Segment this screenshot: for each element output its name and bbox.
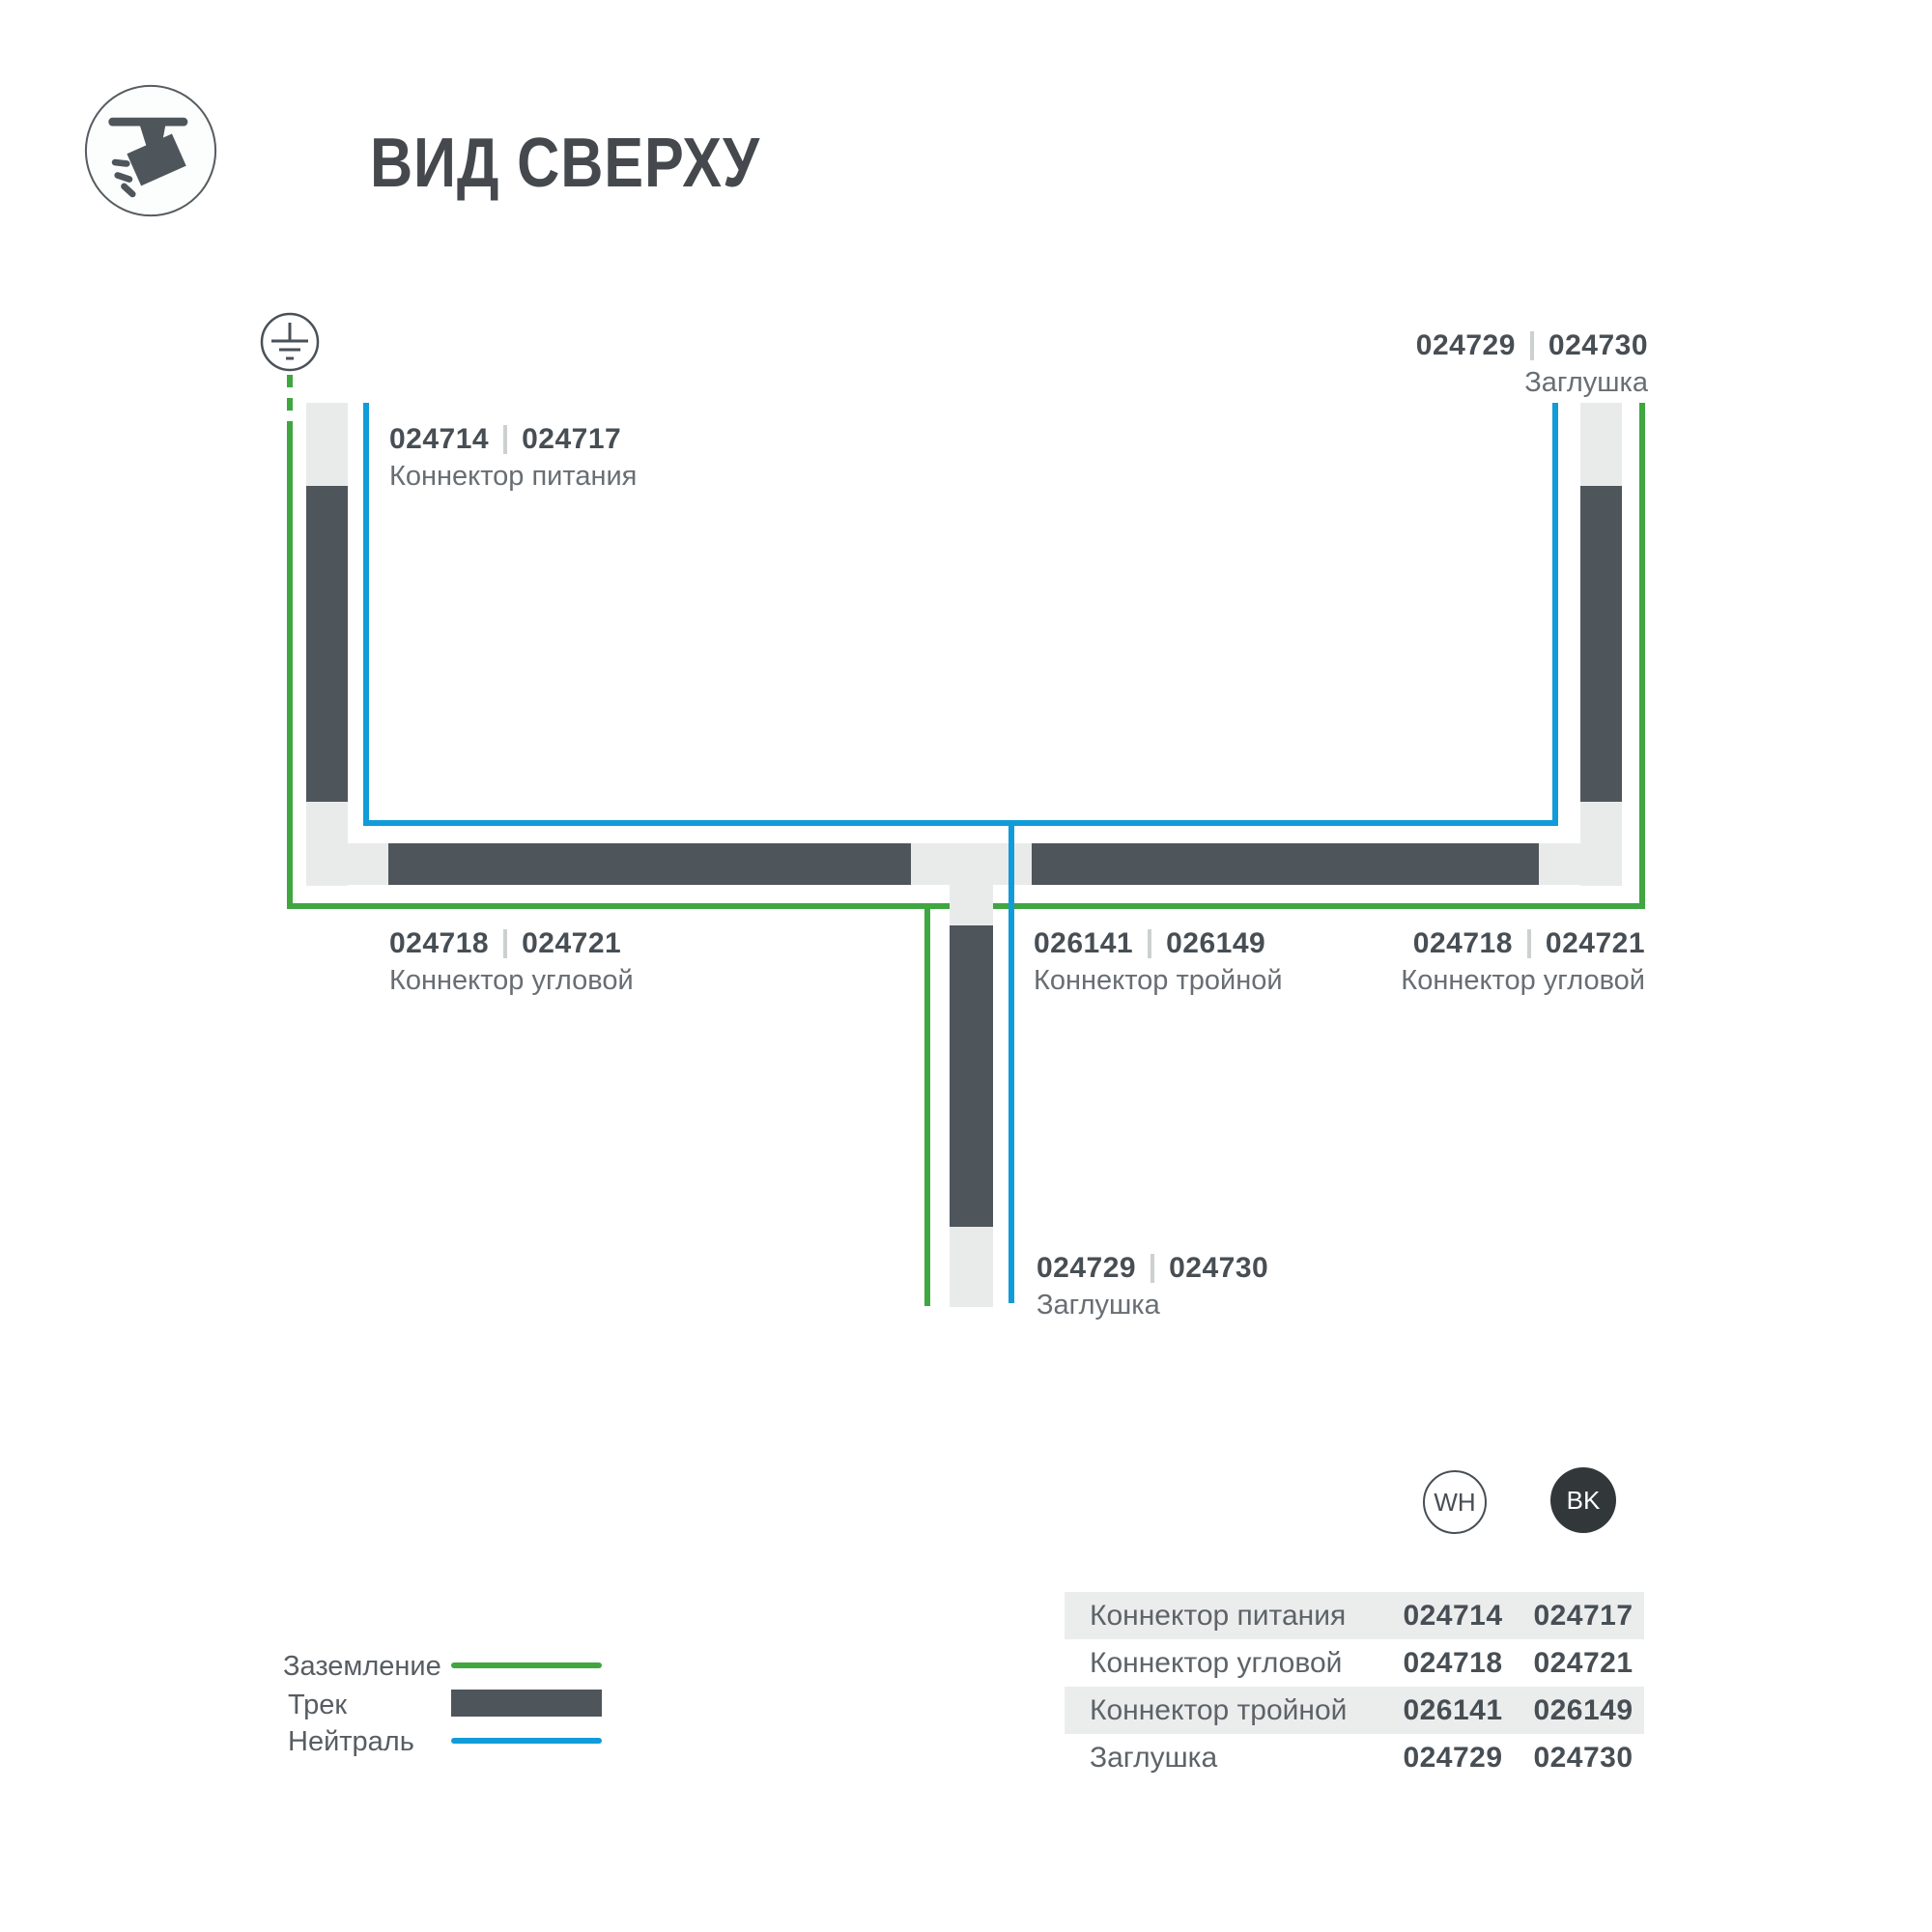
- table-cell-wh: 024714: [1400, 1600, 1506, 1633]
- callout-endcap-top: 024729 024730 Заглушка: [1416, 331, 1648, 397]
- callout-endcap-bottom: 024729 024730 Заглушка: [1037, 1254, 1268, 1320]
- corner-connector-right-stub: [1539, 843, 1580, 885]
- part-name: Коннектор угловой: [389, 967, 634, 995]
- color-swatch-white: WH: [1423, 1470, 1487, 1534]
- legend-swatch-ground-line: [451, 1662, 602, 1668]
- ground-line-branch: [924, 903, 930, 1306]
- part-number-bk: 024721: [1546, 929, 1645, 958]
- track-segment-left-vertical: [306, 486, 348, 802]
- part-number-bk: 024721: [522, 929, 621, 958]
- table-row: Коннектор тройной 026141 026149: [1065, 1687, 1644, 1734]
- part-name: Заглушка: [1037, 1292, 1268, 1320]
- separator: [503, 425, 507, 454]
- ground-line-right: [1639, 403, 1645, 909]
- table-cell-bk: 024721: [1530, 1647, 1636, 1680]
- neutral-line-right: [1552, 403, 1558, 826]
- neutral-line-branch: [1009, 820, 1014, 1303]
- part-number-bk: 024730: [1169, 1254, 1268, 1283]
- track-segment-branch-vertical: [950, 925, 993, 1227]
- separator: [1530, 331, 1534, 360]
- part-number-wh: 024729: [1037, 1254, 1136, 1283]
- legend-label-neutral: Нейтраль: [288, 1728, 414, 1756]
- part-name: Коннектор угловой: [1401, 967, 1645, 995]
- part-number-wh: 024718: [389, 929, 489, 958]
- table-cell-name: Коннектор тройной: [1090, 1694, 1347, 1727]
- part-number-wh: 024718: [1413, 929, 1513, 958]
- table-cell-name: Заглушка: [1090, 1742, 1217, 1775]
- table-cell-wh: 024718: [1400, 1647, 1506, 1680]
- separator: [1148, 929, 1151, 958]
- part-name: Заглушка: [1524, 369, 1648, 397]
- table-row: Заглушка 024729 024730: [1065, 1734, 1644, 1781]
- swatch-label-bk: BK: [1567, 1488, 1601, 1513]
- track-spotlight-icon: [50, 50, 251, 251]
- table-cell-wh: 024729: [1400, 1742, 1506, 1775]
- part-name: Коннектор питания: [389, 463, 637, 491]
- table-row: Коннектор угловой 024718 024721: [1065, 1639, 1644, 1687]
- part-number-wh: 026141: [1034, 929, 1133, 958]
- neutral-line-bottom: [363, 820, 1558, 826]
- callout-tee-connector: 026141 026149 Коннектор тройной: [1034, 929, 1283, 995]
- table-cell-name: Коннектор питания: [1090, 1600, 1346, 1633]
- swatch-label-wh: WH: [1434, 1490, 1475, 1515]
- part-number-bk: 024730: [1548, 331, 1648, 360]
- table-cell-bk: 024730: [1530, 1742, 1636, 1775]
- color-swatch-black: BK: [1550, 1467, 1616, 1533]
- separator: [503, 929, 507, 958]
- legend-swatch-neutral-line: [451, 1738, 602, 1744]
- callout-corner-connector-left: 024718 024721 Коннектор угловой: [389, 929, 634, 995]
- page-title: ВИД СВЕРХУ: [370, 124, 760, 203]
- part-number-bk: 026149: [1166, 929, 1265, 958]
- table-cell-wh: 026141: [1400, 1694, 1506, 1727]
- track-segment-right-vertical: [1580, 486, 1622, 802]
- legend-swatch-track: [451, 1690, 602, 1717]
- callout-corner-connector-right: 024718 024721 Коннектор угловой: [1401, 929, 1645, 995]
- callout-power-connector: 024714 024717 Коннектор питания: [389, 425, 637, 491]
- table-row: Коннектор питания 024714 024717: [1065, 1592, 1644, 1639]
- ground-symbol-icon: [259, 311, 321, 373]
- neutral-line-left: [363, 403, 369, 826]
- track-segment-bottom-right: [1032, 843, 1539, 885]
- separator: [1151, 1254, 1154, 1283]
- part-number-bk: 024717: [522, 425, 621, 454]
- legend-label-ground: Заземление: [283, 1653, 441, 1681]
- separator: [1527, 929, 1531, 958]
- table-cell-name: Коннектор угловой: [1090, 1647, 1342, 1680]
- track-segment-bottom-left: [388, 843, 911, 885]
- legend-label-track: Трек: [288, 1691, 347, 1719]
- corner-connector-left-stub: [348, 843, 388, 885]
- parts-table: Коннектор питания 024714 024717 Коннекто…: [1065, 1592, 1644, 1781]
- ground-line-left: [287, 427, 293, 909]
- part-number-wh: 024714: [389, 425, 489, 454]
- table-cell-bk: 024717: [1530, 1600, 1636, 1633]
- table-cell-bk: 026149: [1530, 1694, 1636, 1727]
- ground-line-dashed: [287, 375, 293, 427]
- part-number-wh: 024729: [1416, 331, 1516, 360]
- part-name: Коннектор тройной: [1034, 967, 1283, 995]
